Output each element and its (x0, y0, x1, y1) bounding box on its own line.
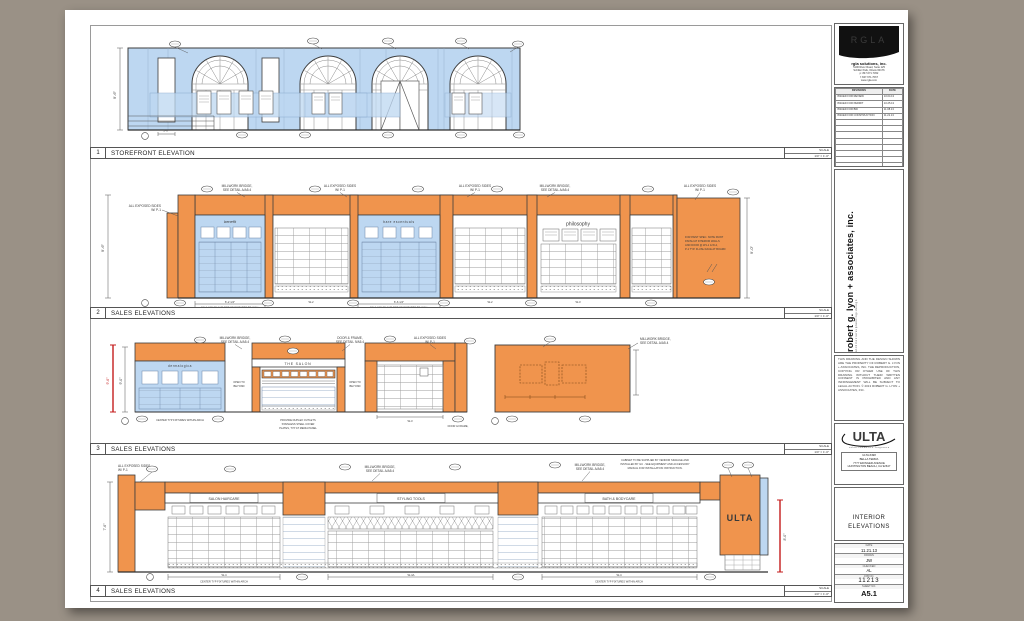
architect-firm-name: robert g. lyon + associates, inc. (845, 174, 855, 352)
svg-text:SEE DETAIL A/A5.4: SEE DETAIL A/A5.4 (576, 467, 605, 471)
view-scale-4: SCALE 1/4" = 1'-0" (784, 586, 831, 596)
svg-text:FINISH AT INTERIOR WALLS: FINISH AT INTERIOR WALLS (685, 239, 720, 243)
svg-text:SEE DETAIL A/A5.4: SEE DETAIL A/A5.4 (640, 341, 669, 345)
view-title-bar-3: 3 SALES ELEVATIONS SCALE 1/4" = 1'-0" (90, 443, 832, 455)
svg-text:CENTER TYP FIXTURES WITHIN ARC: CENTER TYP FIXTURES WITHIN ARCH (156, 418, 204, 422)
revisions-table: REVISIONSDATE ISSUED FOR REVIEW10.04.13 … (835, 88, 903, 167)
scale-value: 1/4" = 1'-0" (785, 154, 831, 159)
svg-text:SEE DETAIL 9/A5.4: SEE DETAIL 9/A5.4 (336, 340, 364, 344)
view-title-1: STOREFRONT ELEVATION (106, 148, 784, 158)
sales-elevation-2-drawing: benefit bare escentuals philosophy (85, 180, 830, 313)
svg-text:FOR PAINT SPEC. NOTE PAINT: FOR PAINT SPEC. NOTE PAINT (685, 235, 724, 239)
pilaster-width-dim: 1'-0" (163, 129, 169, 133)
svg-text:AND DOOR @ W1-1 & W-2,: AND DOOR @ W1-1 & W-2, (685, 243, 718, 247)
svg-text:INSTALLED BY GC - SEE EQUIPMEN: INSTALLED BY GC - SEE EQUIPMENT AND ACCE… (620, 462, 689, 466)
salon-haircare-label: SALON HAIRCARE (209, 497, 241, 501)
svg-text:CENTER TYP FIXTURES WITHIN ARC: CENTER TYP FIXTURES WITHIN ARCH (200, 580, 248, 584)
sheet-title: INTERIOR ELEVATIONS (835, 514, 903, 532)
styling-tools-label: STYLING TOOLS (397, 497, 425, 501)
svg-text:W-3: W-3 (575, 300, 581, 304)
storefront-height-dim: 9'-6" (112, 90, 117, 99)
view-number-2: 2 (91, 308, 106, 318)
ulta-project-block: ULTA s a l o n · c o s m e t i c s · f r… (834, 423, 904, 485)
view-title-2: SALES ELEVATIONS (106, 308, 784, 318)
svg-text:RGLA: RGLA (851, 35, 888, 45)
red-dim: 9'-6" (106, 377, 110, 385)
svg-text:OPEN TO: OPEN TO (349, 380, 361, 384)
ulta-logo: ULTA s a l o n · c o s m e t i c s · f r… (839, 426, 899, 450)
benefit-sign: benefit (224, 219, 237, 224)
svg-text:9'-0": 9'-0" (749, 245, 754, 254)
view-scale-2: SCALE 1/4" = 1'-0" (784, 308, 831, 318)
sales-elevation-3-drawing: dermalogica THE SALON OPEN TO BEYOND OPE… (80, 335, 825, 440)
svg-text:6'-6 1/4": 6'-6 1/4" (394, 300, 404, 304)
svg-text:SEE DETAIL A/A5.4: SEE DETAIL A/A5.4 (366, 469, 395, 473)
svg-text:CENTER TYP FIXTURES WITHIN ARC: CENTER TYP FIXTURES WITHIN ARCH (595, 580, 643, 584)
dermalogica-sign: dermalogica (168, 364, 192, 368)
svg-text:7'-6": 7'-6" (103, 523, 107, 531)
sheet-number: A5.1 (835, 589, 903, 598)
storefront-elevation-drawing: 9'-6" 1'-0" (100, 35, 830, 147)
svg-text:SEE DETAIL A/A5.4: SEE DETAIL A/A5.4 (541, 188, 570, 192)
svg-text:9'-0": 9'-0" (119, 377, 123, 385)
red-dim-right: 8'-0" (783, 533, 787, 541)
svg-text:W/ P-1: W/ P-1 (470, 188, 480, 192)
svg-text:W-2: W-2 (487, 300, 493, 304)
svg-text:PLATES, TYP AT MEDIA PANEL: PLATES, TYP AT MEDIA PANEL (279, 426, 317, 430)
rgla-address: 5100 River Road, Suite 125 Schiller Park… (835, 66, 903, 82)
title-block: RGLA rgla solutions, inc. 5100 River Roa… (834, 23, 904, 605)
philosophy-sign: philosophy (566, 222, 590, 228)
svg-text:BEYOND: BEYOND (350, 384, 361, 388)
svg-text:BEYOND: BEYOND (234, 384, 245, 388)
svg-text:CABINET TO BE SUPPLIED BY VEND: CABINET TO BE SUPPLIED BY VENDOR SIGNAGE… (621, 458, 689, 462)
svg-text:W-4: W-4 (221, 573, 227, 577)
svg-text:ULTA: ULTA (853, 429, 886, 444)
svg-text:W/ P-1: W/ P-1 (335, 188, 345, 192)
sign-plate-row (172, 506, 697, 514)
svg-text:W/ P-1: W/ P-1 (695, 188, 705, 192)
svg-text:SEE DETAIL A/A5.4: SEE DETAIL A/A5.4 (223, 188, 252, 192)
view-number-3: 3 (91, 444, 106, 454)
view-number-1: 1 (91, 148, 106, 158)
svg-text:STAINLESS STEEL COVER: STAINLESS STEEL COVER (282, 422, 315, 426)
view-title-bar-4: 4 SALES ELEVATIONS SCALE 1/4" = 1'-0" (90, 585, 832, 597)
view-scale-1: SCALE 1/4" = 1'-0" (784, 148, 831, 158)
svg-text:W/ P-1: W/ P-1 (118, 468, 128, 472)
desktop-background: 9'-6" 1'-0" 1 STOREFRONT ELEVATION SCALE… (0, 0, 1024, 621)
view-number-4: 4 (91, 586, 106, 596)
svg-text:DOOR & FRAME,: DOOR & FRAME, (448, 424, 469, 428)
ulta-tagline: s a l o n · c o s m e t i c s · f r a g … (849, 446, 890, 449)
architect-firm-tagline: a r c h i t e c t u r e • p l a n n i n … (855, 176, 858, 352)
view-scale-3: SCALE 1/4" = 1'-0" (784, 444, 831, 454)
disclaimer-text: THIS DRAWING AND THE DESIGN SHOWN ARE TH… (835, 356, 903, 395)
svg-text:W-4: W-4 (616, 573, 622, 577)
bare-escentuals-sign: bare escentuals (383, 220, 415, 224)
svg-text:9'-6": 9'-6" (100, 243, 105, 252)
disclaimer-block: THIS DRAWING AND THE DESIGN SHOWN ARE TH… (834, 355, 904, 421)
storefront-wall (128, 48, 520, 130)
revisions-block: REVISIONSDATE ISSUED FOR REVIEW10.04.13 … (834, 87, 904, 167)
svg-text:SEE DETAIL A/A5.4: SEE DETAIL A/A5.4 (221, 340, 250, 344)
rgla-logo: RGLA (835, 26, 903, 60)
svg-text:W-2: W-2 (308, 300, 314, 304)
architect-name-block: robert g. lyon + associates, inc. a r c … (834, 169, 904, 353)
svg-text:MANUAL FOR INSTALLATION INSTRU: MANUAL FOR INSTALLATION INSTRUCTION. (628, 466, 683, 470)
sales-elevation-4-drawing: SALON HAIRCARE STYLING TOOLS BATH & BODY… (80, 455, 840, 585)
sheet-title-block: INTERIOR ELEVATIONS (834, 487, 904, 541)
view-title-bar-1: 1 STOREFRONT ELEVATION SCALE 1/4" = 1'-0… (90, 147, 832, 159)
view-title-4: SALES ELEVATIONS (106, 586, 784, 596)
svg-text:W/ P-1: W/ P-1 (425, 340, 435, 344)
project-address: ULTA #498 BELLA TERRA 7777 EDINGER AVENU… (841, 452, 897, 471)
ulta-wall-graphic: ULTA (727, 513, 754, 523)
the-salon-sign: THE SALON (284, 362, 311, 366)
sales3-graphic-panel: MILLWORK BRIDGE, SEE DETAIL A/A5.4 (492, 336, 671, 424)
sales4-fixtures: SALON HAIRCARE STYLING TOOLS BATH & BODY… (118, 494, 768, 573)
svg-text:6'-2 1/4": 6'-2 1/4" (225, 300, 235, 304)
svg-text:W/ P-1: W/ P-1 (151, 208, 161, 212)
view-title-bar-2: 2 SALES ELEVATIONS SCALE 1/4" = 1'-0" (90, 307, 832, 319)
sheet-info-block: DATE 11.21.13 DRAWN JW CHECKED AL JOB NO… (834, 543, 904, 603)
rgla-logo-block: RGLA rgla solutions, inc. 5100 River Roa… (834, 23, 904, 85)
bath-bodycare-label: BATH & BODYCARE (603, 497, 637, 501)
svg-text:P-1 TYP. FLUSH FACE AT BOARD: P-1 TYP. FLUSH FACE AT BOARD (685, 247, 726, 251)
svg-text:W-4A: W-4A (408, 573, 415, 577)
svg-text:W-3: W-3 (407, 419, 413, 423)
svg-text:PROVIDE DUPLEX OUTLETS: PROVIDE DUPLEX OUTLETS (280, 418, 316, 422)
view-title-3: SALES ELEVATIONS (106, 444, 784, 454)
svg-text:OPEN TO: OPEN TO (233, 380, 245, 384)
drawing-sheet: 9'-6" 1'-0" 1 STOREFRONT ELEVATION SCALE… (65, 10, 908, 608)
